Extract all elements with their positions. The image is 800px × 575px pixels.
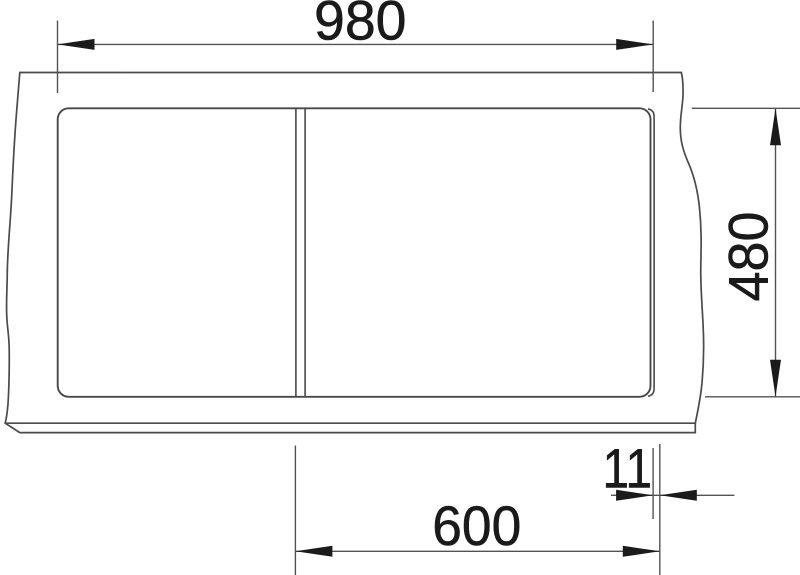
svg-text:980: 980: [314, 0, 407, 52]
svg-text:11: 11: [603, 437, 653, 500]
svg-text:480: 480: [717, 212, 780, 302]
svg-text:600: 600: [432, 494, 521, 557]
